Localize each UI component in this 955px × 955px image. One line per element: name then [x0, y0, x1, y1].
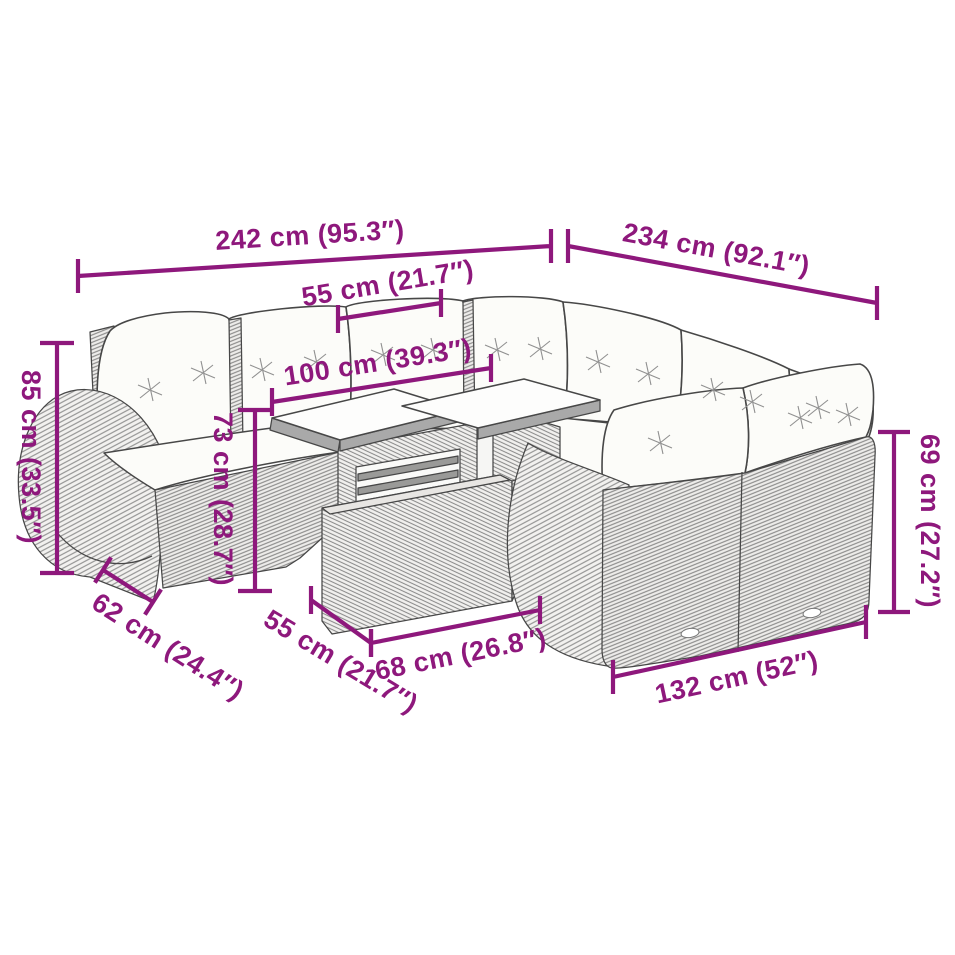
dim-total-width-right: 234 cm (92.1″) [568, 217, 877, 320]
dimension-label: 242 cm (95.3″) [214, 214, 405, 256]
dimension-label: 68 cm (26.8″) [372, 622, 549, 686]
product-dimension-image: 242 cm (95.3″)234 cm (92.1″)55 cm (21.7″… [0, 0, 955, 955]
dimension-label: 69 cm (27.2″) [915, 434, 945, 608]
dimension-label: 85 cm (33.5″) [16, 370, 46, 544]
dimension-label: 73 cm (28.7″) [208, 412, 238, 586]
dim-right-section-height: 69 cm (27.2″) [878, 432, 945, 612]
furniture-dimension-diagram: 242 cm (95.3″)234 cm (92.1″)55 cm (21.7″… [0, 0, 955, 955]
dimension-line [878, 432, 910, 612]
dimension-label: 62 cm (24.4″) [87, 587, 250, 706]
